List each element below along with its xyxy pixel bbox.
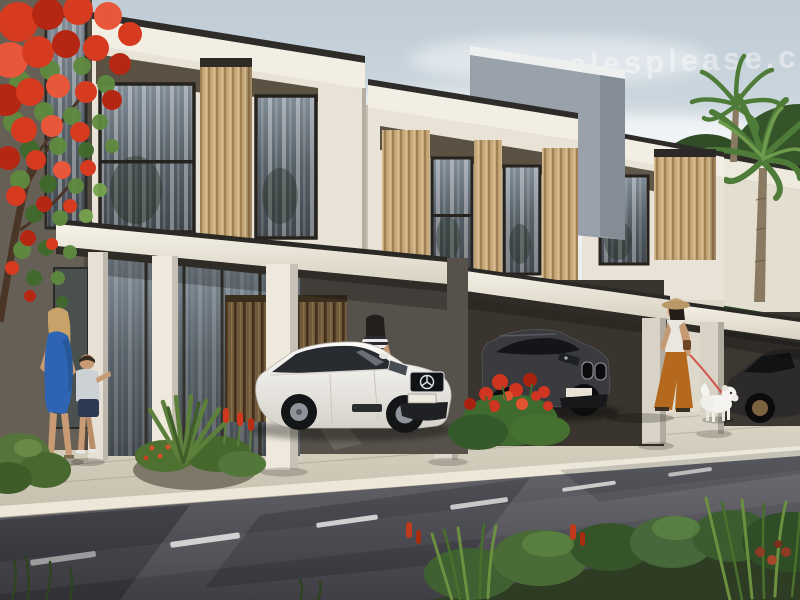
render-image: salesplease.co	[0, 0, 800, 600]
shoulder-bag	[683, 340, 691, 350]
mercedes-plate	[408, 394, 436, 403]
boy-shirt	[76, 369, 100, 403]
boy-shorts	[78, 399, 99, 417]
window-1b	[256, 96, 316, 238]
wood-slat-box-3	[654, 156, 716, 260]
wood-slat-panel-2a	[382, 130, 430, 270]
window-2b	[504, 166, 540, 274]
wood-slat-panel-2b	[474, 140, 502, 276]
bmw-kidney-grille	[582, 362, 593, 379]
wood-slat-panel-1	[200, 64, 252, 254]
window-2a	[432, 158, 472, 270]
wood-slat-panel-2c	[542, 148, 578, 280]
bmw-plate	[566, 388, 592, 397]
